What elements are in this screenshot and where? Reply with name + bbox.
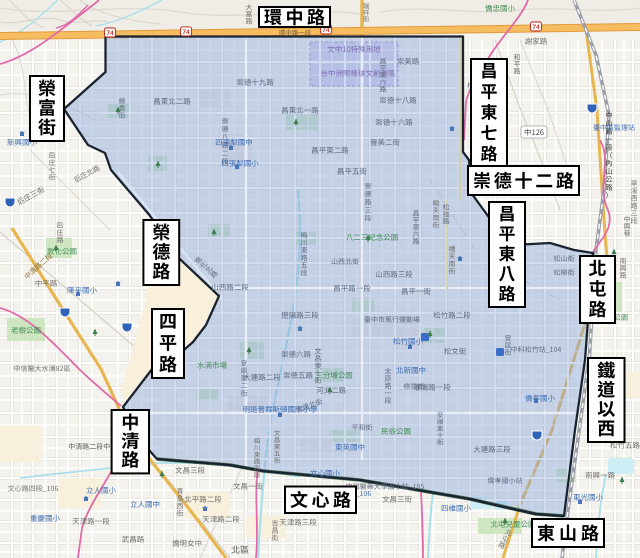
- svg-text:74: 74: [106, 30, 114, 37]
- svg-text:74: 74: [182, 29, 190, 36]
- svg-text:74: 74: [322, 27, 330, 34]
- svg-text:74: 74: [532, 24, 540, 31]
